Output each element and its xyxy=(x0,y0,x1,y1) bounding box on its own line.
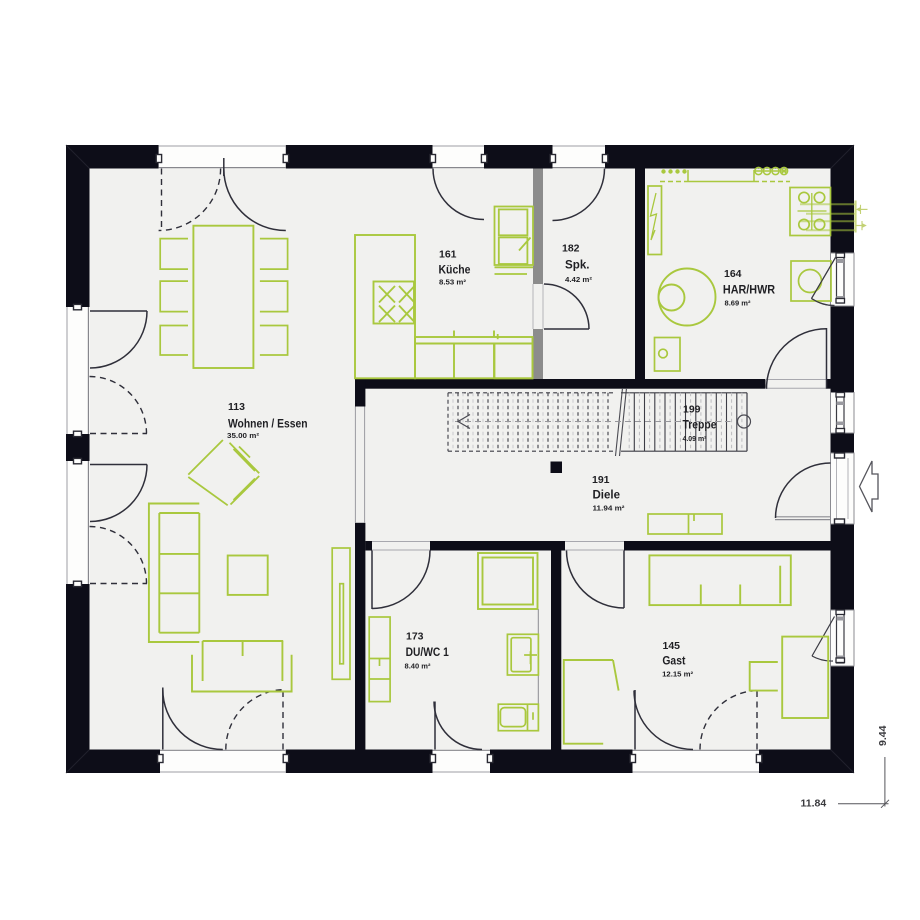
svg-text:191: 191 xyxy=(592,474,610,486)
svg-text:9.44: 9.44 xyxy=(877,725,889,746)
svg-text:8.53 m²: 8.53 m² xyxy=(439,278,467,287)
svg-text:173: 173 xyxy=(406,631,424,643)
svg-text:11.84: 11.84 xyxy=(801,798,827,810)
svg-text:Küche: Küche xyxy=(439,263,471,277)
svg-text:182: 182 xyxy=(562,243,580,255)
svg-text:Wohnen / Essen: Wohnen / Essen xyxy=(228,417,308,431)
svg-text:35.00 m²: 35.00 m² xyxy=(227,431,260,440)
svg-text:4.09 m²: 4.09 m² xyxy=(683,434,707,443)
svg-text:199: 199 xyxy=(683,404,701,416)
svg-text:164: 164 xyxy=(724,268,742,280)
svg-text:HAR/HWR: HAR/HWR xyxy=(723,283,775,297)
svg-text:11.94 m²: 11.94 m² xyxy=(593,503,626,512)
svg-text:Spk.: Spk. xyxy=(565,258,590,272)
svg-text:Diele: Diele xyxy=(593,488,621,502)
svg-text:8.69 m²: 8.69 m² xyxy=(725,299,751,308)
svg-text:DU/WC 1: DU/WC 1 xyxy=(406,645,449,659)
svg-text:Treppe: Treppe xyxy=(683,418,717,432)
svg-text:4.42 m²: 4.42 m² xyxy=(565,275,593,284)
svg-text:12.15 m²: 12.15 m² xyxy=(662,669,694,678)
svg-text:8.40 m²: 8.40 m² xyxy=(405,662,431,671)
svg-text:Gast: Gast xyxy=(662,654,685,668)
svg-text:113: 113 xyxy=(228,401,245,413)
svg-text:145: 145 xyxy=(663,640,681,652)
svg-text:161: 161 xyxy=(439,249,457,261)
